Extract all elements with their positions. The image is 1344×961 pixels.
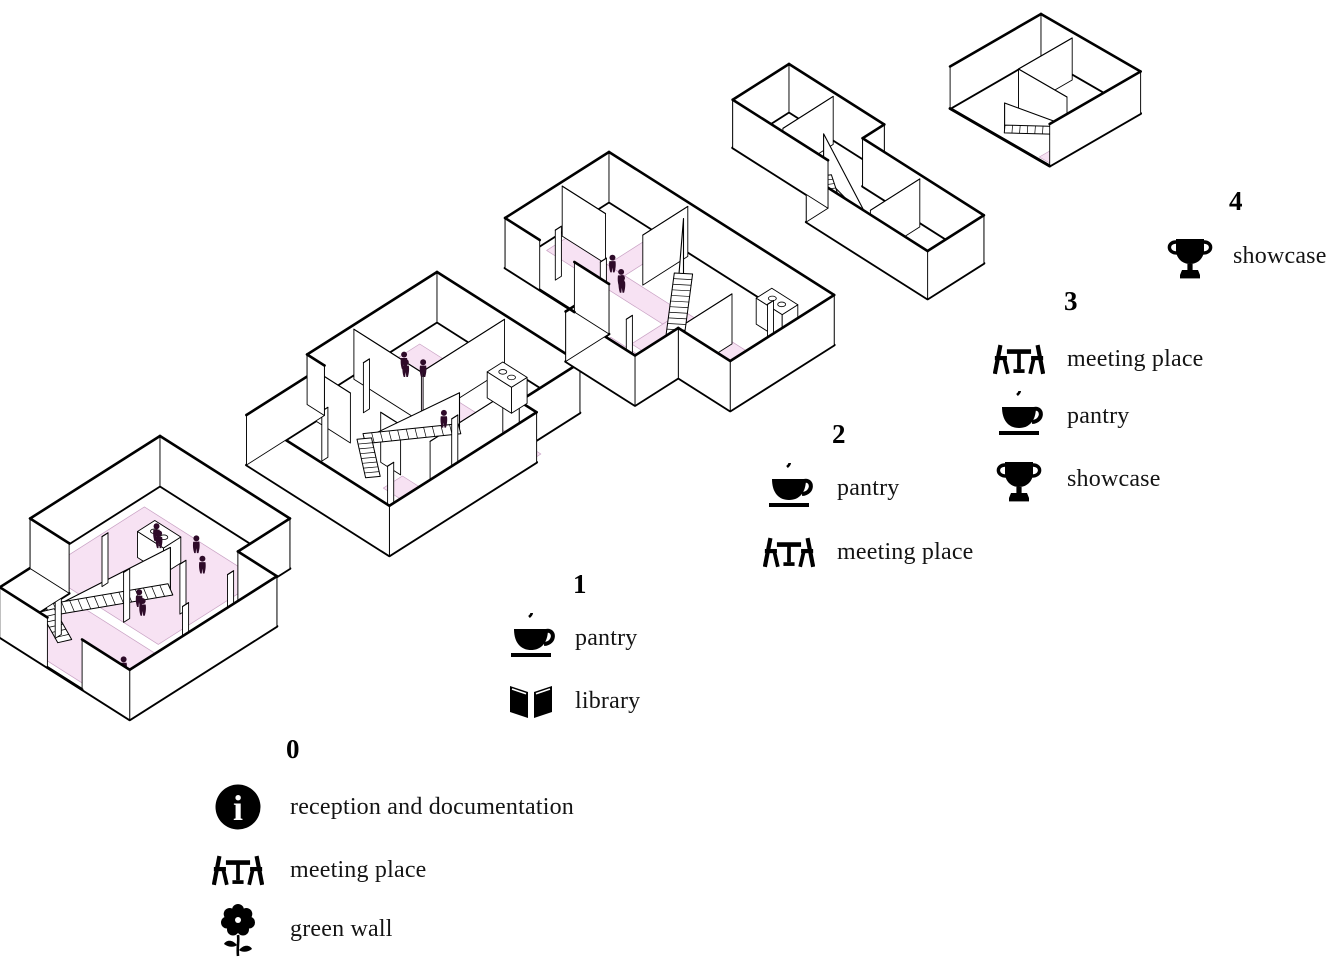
floor-number-3: 3 [1064, 288, 1078, 315]
legend-label: meeting place [290, 857, 427, 884]
legend-label: reception and documentation [290, 794, 574, 821]
info-icon: i [212, 781, 264, 833]
meeting-place-icon [993, 333, 1045, 385]
library-icon [505, 675, 557, 727]
pantry-icon [993, 390, 1045, 442]
meeting-place-icon [212, 844, 264, 896]
floor-number-4: 4 [1229, 188, 1243, 215]
legend-label: library [575, 688, 640, 715]
legend-item: meeting place [212, 844, 427, 896]
legend-label: pantry [837, 475, 900, 502]
legend-label: showcase [1067, 466, 1161, 493]
legend-label: meeting place [1067, 346, 1204, 373]
green-wall-icon [212, 903, 264, 955]
showcase-icon [993, 453, 1045, 505]
legend-item: i reception and documentation [212, 781, 574, 833]
legend-item: pantry [505, 612, 638, 664]
legend-item: showcase [993, 453, 1161, 505]
floor-plan-1 [246, 272, 579, 556]
legend-item: library [505, 675, 640, 727]
legend-label: green wall [290, 916, 393, 943]
svg-text:i: i [233, 788, 243, 828]
legend-item: meeting place [993, 333, 1204, 385]
floor-plan-4 [950, 14, 1141, 166]
legend-label: showcase [1233, 243, 1327, 270]
axonometric-diagram: 0 1 2 3 4 i reception and documentation … [0, 0, 1344, 961]
legend-label: pantry [1067, 403, 1130, 430]
showcase-icon [1164, 230, 1216, 282]
floor-number-0: 0 [286, 736, 300, 763]
pantry-icon [505, 612, 557, 664]
legend-item: pantry [993, 390, 1130, 442]
floor-number-1: 1 [573, 571, 587, 598]
legend-item: showcase [1164, 230, 1327, 282]
meeting-place-icon [763, 526, 815, 578]
pantry-icon [763, 462, 815, 514]
legend-item: meeting place [763, 526, 974, 578]
legend-item: green wall [212, 903, 393, 955]
legend-label: meeting place [837, 539, 974, 566]
legend-item: pantry [763, 462, 900, 514]
floor-plan-0 [0, 436, 290, 720]
legend-label: pantry [575, 625, 638, 652]
floor-number-2: 2 [832, 421, 846, 448]
